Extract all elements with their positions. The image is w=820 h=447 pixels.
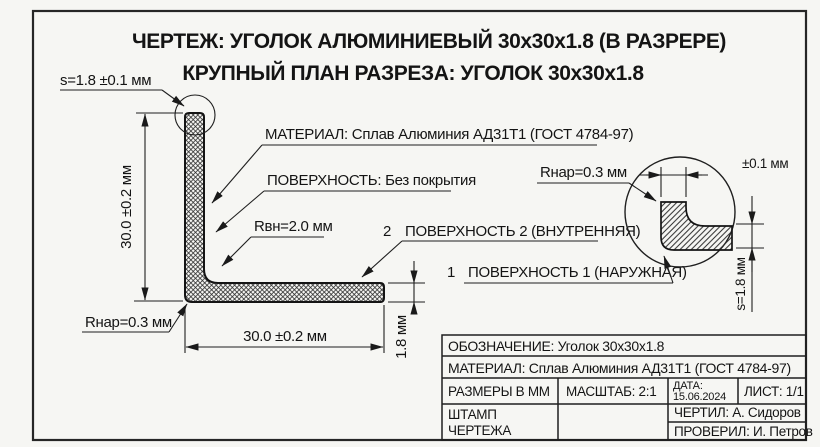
surface2-number: 2	[383, 223, 391, 240]
title-block-drawn-by: ЧЕРТИЛ: А. Сидоров	[674, 405, 801, 420]
inner-radius-callout: Rвн=2.0 мм	[222, 218, 333, 266]
title-block-stamp-line2: ЧЕРТЕЖА	[448, 423, 511, 438]
surface1-number: 1	[447, 264, 455, 281]
outer-radius-detail-text: Rнар=0.3 мм	[540, 164, 627, 181]
thickness-callout: s=1.8 ±0.1 мм	[60, 72, 184, 106]
coating-callout-text: ПОВЕРХНОСТЬ: Без покрытия	[267, 172, 476, 189]
title-block-designation: ОБОЗНАЧЕНИЕ: Уголок 30х30х1.8	[448, 338, 665, 354]
detail-thickness-text: s=1.8 мм	[733, 257, 748, 310]
surface2-callout-text: ПОВЕРХНОСТЬ 2 (ВНУТРЕННЯЯ)	[405, 223, 641, 240]
title-block-units: РАЗМЕРЫ В ММ	[448, 384, 550, 399]
inner-radius-callout-text: Rвн=2.0 мм	[254, 218, 333, 235]
drawing-canvas: ЧЕРТЕЖ: УГОЛОК АЛЮМИНИЕВЫЙ 30х30х1.8 (В …	[0, 0, 820, 447]
title-block-date-value: 15.06.2024	[673, 391, 726, 403]
outer-radius-main-text: Rнар=0.3 мм	[85, 314, 172, 331]
dimension-width: 30.0 ±0.2 мм	[185, 305, 384, 353]
surface1-callout: 1 ПОВЕРХНОСТЬ 1 (НАРУЖНАЯ)	[447, 256, 687, 283]
detail-corner-section	[661, 202, 732, 250]
page-subtitle: КРУПНЫЙ ПЛАН РАЗРЕЗА: УГОЛОК 30х30х1.8	[182, 61, 644, 85]
surface1-callout-text: ПОВЕРХНОСТЬ 1 (НАРУЖНАЯ)	[468, 264, 687, 281]
outer-radius-callout-detail: Rнар=0.3 мм	[537, 164, 656, 201]
title-block-scale: МАСШТАБ: 2:1	[566, 384, 656, 399]
title-block-stamp-line1: ШТАМП	[448, 407, 497, 422]
title-block-sheet: ЛИСТ: 1/1	[744, 384, 804, 399]
material-callout-text: МАТЕРИАЛ: Сплав Алюминия АД31Т1 (ГОСТ 47…	[265, 126, 634, 143]
drawing-sheet: ЧЕРТЕЖ: УГОЛОК АЛЮМИНИЕВЫЙ 30х30х1.8 (В …	[0, 0, 820, 447]
dimension-height: 30.0 ±0.2 мм	[118, 113, 183, 301]
page-title: ЧЕРТЕЖ: УГОЛОК АЛЮМИНИЕВЫЙ 30х30х1.8 (В …	[132, 29, 726, 53]
dimension-height-text: 30.0 ±0.2 мм	[118, 165, 135, 249]
detail-dimension-right: s=1.8 мм	[733, 196, 764, 312]
detail-dimension-top	[640, 167, 708, 197]
dimension-width-text: 30.0 ±0.2 мм	[243, 328, 327, 345]
dimension-thickness: 1.8 мм	[388, 261, 425, 359]
thickness-callout-text: s=1.8 ±0.1 мм	[60, 72, 151, 89]
detail-tolerance-text: ±0.1 мм	[742, 156, 788, 171]
dimension-thickness-text: 1.8 мм	[393, 315, 410, 359]
title-block-material: МАТЕРИАЛ: Сплав Алюминия АД31Т1 (ГОСТ 47…	[448, 360, 791, 376]
outer-radius-callout-main: Rнар=0.3 мм	[82, 304, 187, 332]
title-block-checked-by: ПРОВЕРИЛ: И. Петров	[674, 424, 813, 439]
title-block: ОБОЗНАЧЕНИЕ: Уголок 30х30х1.8 МАТЕРИАЛ: …	[442, 335, 813, 440]
